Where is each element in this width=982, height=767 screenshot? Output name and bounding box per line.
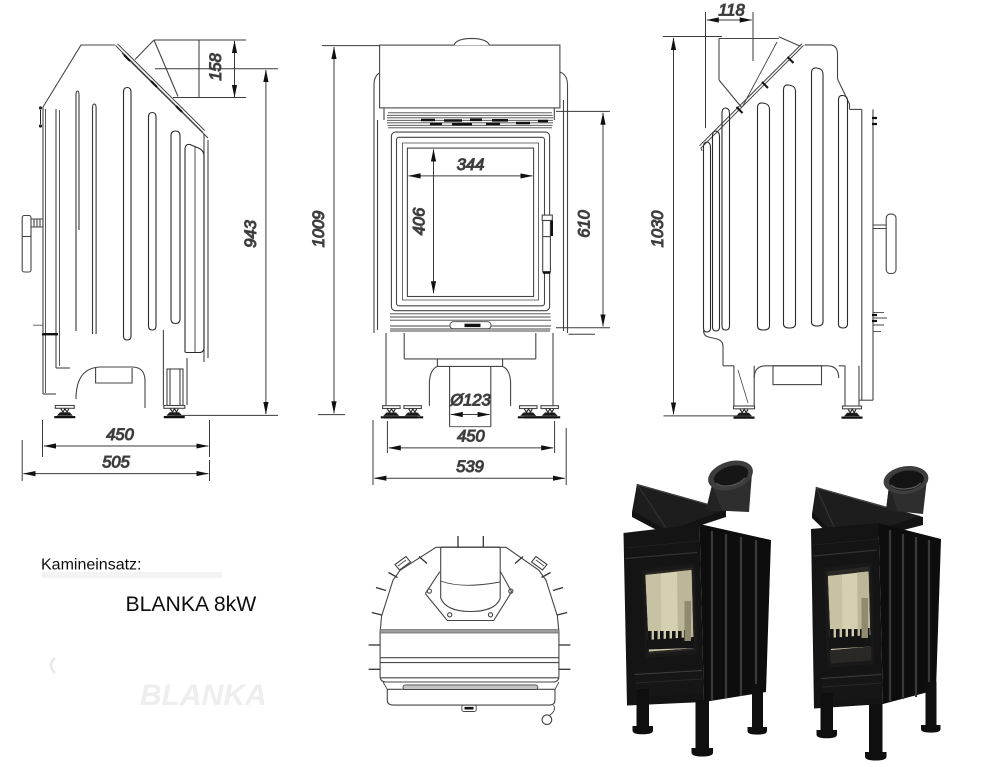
svg-text:Kamineinsatz:: Kamineinsatz:	[41, 557, 142, 574]
svg-text:539: 539	[456, 458, 484, 476]
svg-text:406: 406	[411, 207, 429, 235]
svg-text:Ø123: Ø123	[449, 392, 491, 410]
svg-text:1009: 1009	[310, 211, 328, 248]
svg-text:610: 610	[576, 209, 594, 237]
svg-text:BLANKA 8kW: BLANKA 8kW	[126, 593, 257, 616]
svg-text:BLANKA: BLANKA	[140, 679, 267, 712]
svg-text:450: 450	[457, 428, 485, 446]
svg-text:450: 450	[106, 426, 134, 444]
svg-text:158: 158	[207, 52, 225, 80]
svg-text:505: 505	[102, 454, 130, 472]
svg-text:344: 344	[457, 156, 485, 174]
svg-text:118: 118	[718, 2, 745, 20]
svg-text:1030: 1030	[649, 210, 667, 248]
svg-text:943: 943	[242, 219, 260, 247]
